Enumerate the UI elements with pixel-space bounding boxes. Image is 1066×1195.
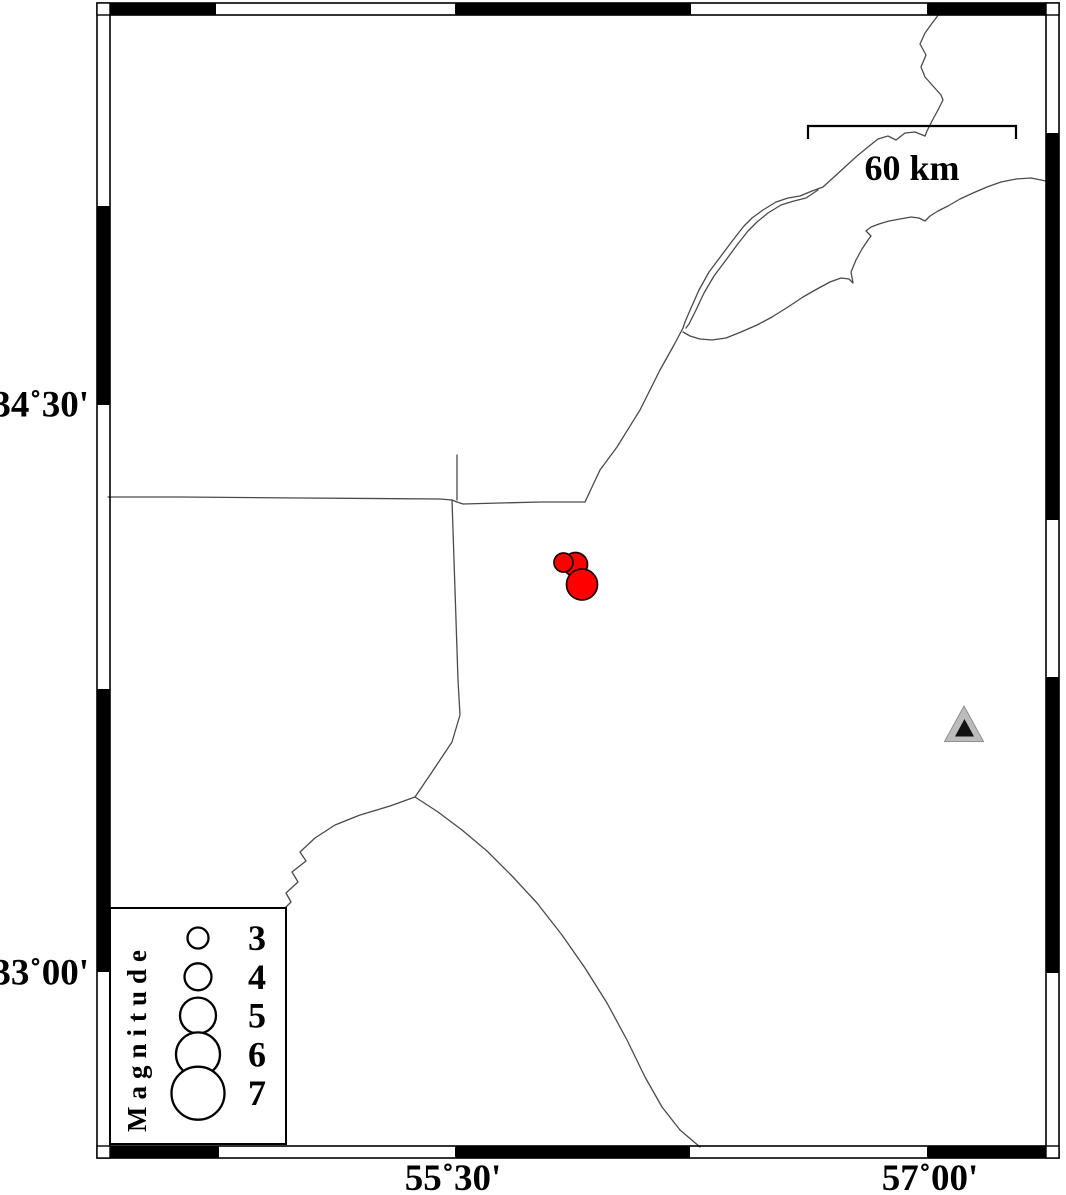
legend-value-m3: 3 [248,918,266,958]
boundary-diagonal [585,328,683,502]
station-marker [945,706,984,742]
map-canvas: 60 km [0,0,1066,1195]
epicenter-circle-2 [554,553,573,572]
boundary-west-horizontal [108,497,585,504]
legend-title: Magnitude [122,943,152,1132]
latitude-label-bottom: 33˚00' [0,953,89,994]
legend-symbol-m3 [188,928,209,949]
legend-value-m6: 6 [248,1034,266,1074]
boundary-vertical [415,500,460,797]
epicenter-circle-3 [567,569,598,600]
river-north [920,10,943,136]
scale-bar-label: 60 km [864,148,959,188]
wadi-lower-bank [683,178,1046,340]
seismicity-map-figure: 60 km [0,0,1066,1195]
longitude-label-left: 55˚30' [405,1158,502,1195]
legend-value-m5: 5 [248,996,266,1036]
magnitude-legend: Magnitude 34567 [110,908,286,1144]
legend-value-m7: 7 [248,1073,266,1113]
wadi-second-bank [686,190,818,328]
boundary-arc-west [276,797,415,928]
legend-symbol-m4 [185,963,212,990]
boundary-arc-southeast [415,797,700,1147]
epicenter-circles [554,553,598,601]
legend-symbol-m5 [180,998,216,1034]
legend-symbol-m7 [172,1067,225,1120]
longitude-label-right: 57˚00' [882,1158,979,1195]
legend-value-m4: 4 [248,957,266,997]
latitude-label-top: 34˚30' [0,385,89,426]
scale-bar: 60 km [808,126,1016,188]
